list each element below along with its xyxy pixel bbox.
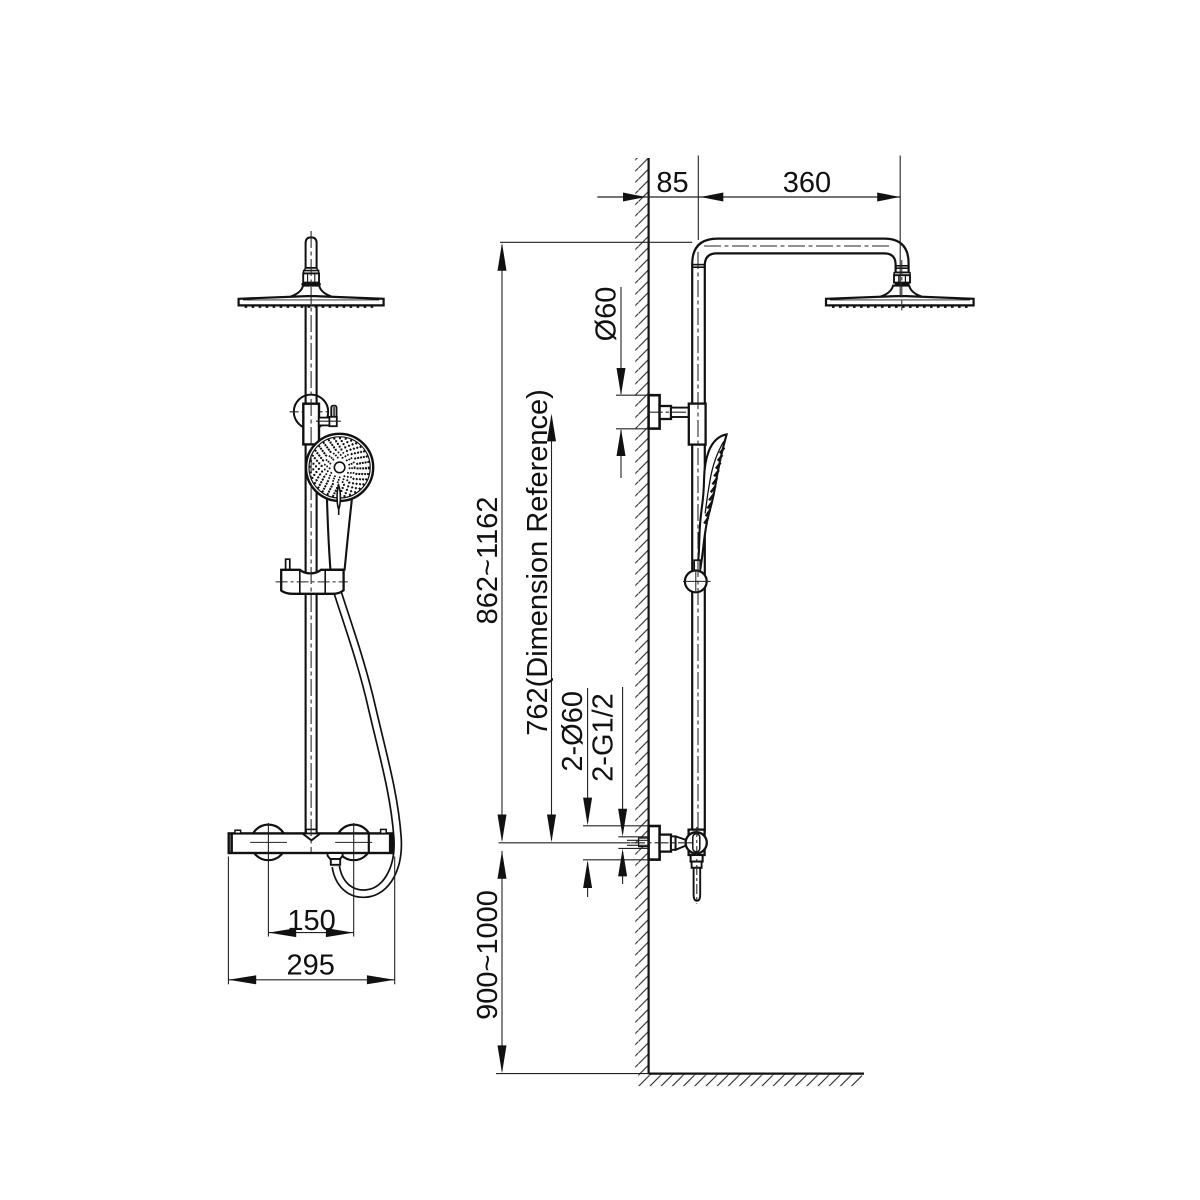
svg-text:2-Ø60: 2-Ø60: [557, 691, 589, 772]
svg-text:2-G1/2: 2-G1/2: [588, 693, 620, 782]
svg-text:85: 85: [656, 167, 688, 199]
svg-text:Ø60: Ø60: [591, 287, 623, 342]
svg-text:900~1000: 900~1000: [472, 890, 504, 1020]
svg-text:150: 150: [287, 905, 335, 937]
svg-text:762(Dimension Reference): 762(Dimension Reference): [522, 389, 554, 736]
svg-text:862~1162: 862~1162: [472, 497, 504, 625]
svg-text:295: 295: [287, 949, 335, 981]
svg-text:360: 360: [783, 167, 831, 199]
